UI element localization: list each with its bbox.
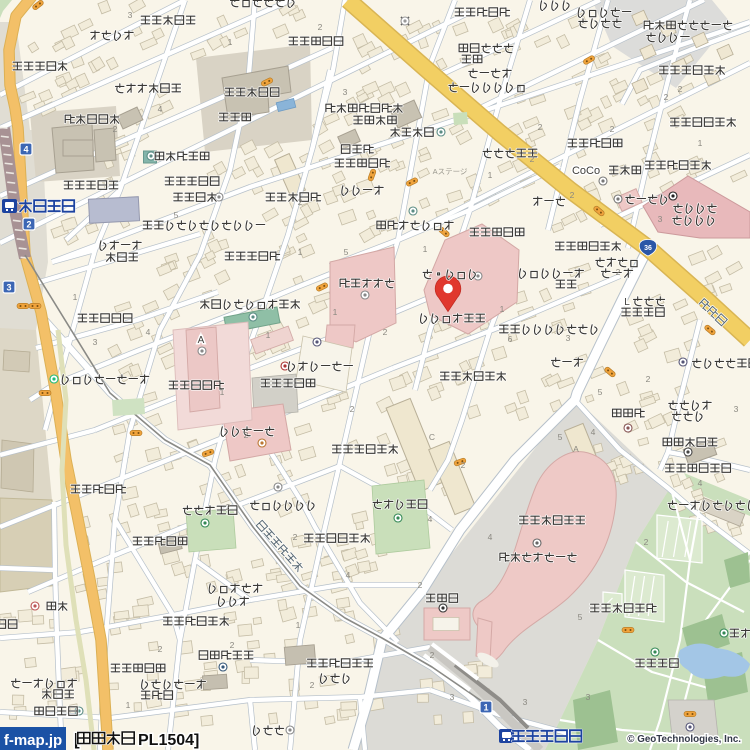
svg-text:1: 1 <box>333 307 338 317</box>
svg-text:2: 2 <box>646 374 651 384</box>
svg-text:2: 2 <box>298 197 303 207</box>
svg-text:1: 1 <box>488 170 493 180</box>
svg-text:3: 3 <box>566 333 571 343</box>
svg-text:3: 3 <box>734 404 739 414</box>
svg-text:5: 5 <box>558 432 563 442</box>
svg-text:4: 4 <box>488 532 493 542</box>
svg-text:2: 2 <box>310 680 315 690</box>
svg-text:2: 2 <box>244 430 249 440</box>
svg-text:36: 36 <box>644 245 652 252</box>
svg-text:4: 4 <box>146 327 151 337</box>
svg-text:1: 1 <box>500 304 505 314</box>
svg-text:1: 1 <box>423 244 428 254</box>
svg-text:2: 2 <box>113 124 118 134</box>
svg-text:2: 2 <box>610 124 615 134</box>
svg-text:4: 4 <box>428 514 433 524</box>
svg-text:f-map.jp: f-map.jp <box>4 732 62 749</box>
svg-text:5: 5 <box>598 387 603 397</box>
svg-text:4: 4 <box>591 427 596 437</box>
svg-text:3: 3 <box>128 10 133 20</box>
svg-text:4: 4 <box>158 104 163 114</box>
svg-text:1: 1 <box>266 330 271 340</box>
svg-text:2: 2 <box>230 640 235 650</box>
svg-text:2: 2 <box>616 267 621 277</box>
svg-text:5: 5 <box>578 612 583 622</box>
svg-text:2: 2 <box>644 537 649 547</box>
svg-text:© GeoTechnologies, Inc.: © GeoTechnologies, Inc. <box>627 734 741 745</box>
svg-text:2: 2 <box>350 404 355 414</box>
svg-text:3: 3 <box>523 697 528 707</box>
svg-text:C: C <box>429 432 435 442</box>
svg-text:2: 2 <box>418 580 423 590</box>
svg-text:1: 1 <box>518 84 523 94</box>
svg-text:1: 1 <box>483 703 488 713</box>
svg-text:PL1504]: PL1504] <box>138 732 199 749</box>
svg-text:2: 2 <box>293 532 298 542</box>
svg-text:2: 2 <box>430 650 435 660</box>
svg-text:3: 3 <box>658 214 663 224</box>
svg-text:1: 1 <box>296 620 301 630</box>
svg-text:1: 1 <box>228 37 233 47</box>
svg-text:4: 4 <box>346 570 351 580</box>
svg-text:6: 6 <box>508 334 513 344</box>
svg-text:2: 2 <box>461 460 466 470</box>
svg-text:1: 1 <box>698 138 703 148</box>
svg-text:3: 3 <box>343 87 348 97</box>
svg-text:L: L <box>624 297 630 308</box>
svg-text:3: 3 <box>93 337 98 347</box>
svg-text:CoCo: CoCo <box>572 165 600 177</box>
svg-text:Aステージ: Aステージ <box>433 167 468 176</box>
svg-text:5: 5 <box>174 210 179 220</box>
svg-text:2: 2 <box>383 327 388 337</box>
svg-text:2: 2 <box>26 220 31 230</box>
svg-text:1: 1 <box>298 247 303 257</box>
svg-text:3: 3 <box>450 692 455 702</box>
svg-text:4: 4 <box>698 478 703 488</box>
svg-text:2: 2 <box>664 92 669 102</box>
svg-text:3: 3 <box>586 692 591 702</box>
svg-text:1: 1 <box>220 387 225 397</box>
svg-text:2: 2 <box>158 644 163 654</box>
svg-text:A: A <box>198 335 205 346</box>
svg-text:A: A <box>573 444 579 454</box>
svg-text:2: 2 <box>318 22 323 32</box>
svg-text:2: 2 <box>226 502 231 512</box>
svg-text:1: 1 <box>73 292 78 302</box>
svg-text:2: 2 <box>530 154 535 164</box>
svg-text:2: 2 <box>678 84 683 94</box>
svg-text:2: 2 <box>538 122 543 132</box>
svg-text:4: 4 <box>23 145 28 155</box>
svg-text:1: 1 <box>126 700 131 710</box>
svg-text:3: 3 <box>6 283 11 293</box>
svg-text:5: 5 <box>344 247 349 257</box>
svg-text:2: 2 <box>570 190 575 200</box>
